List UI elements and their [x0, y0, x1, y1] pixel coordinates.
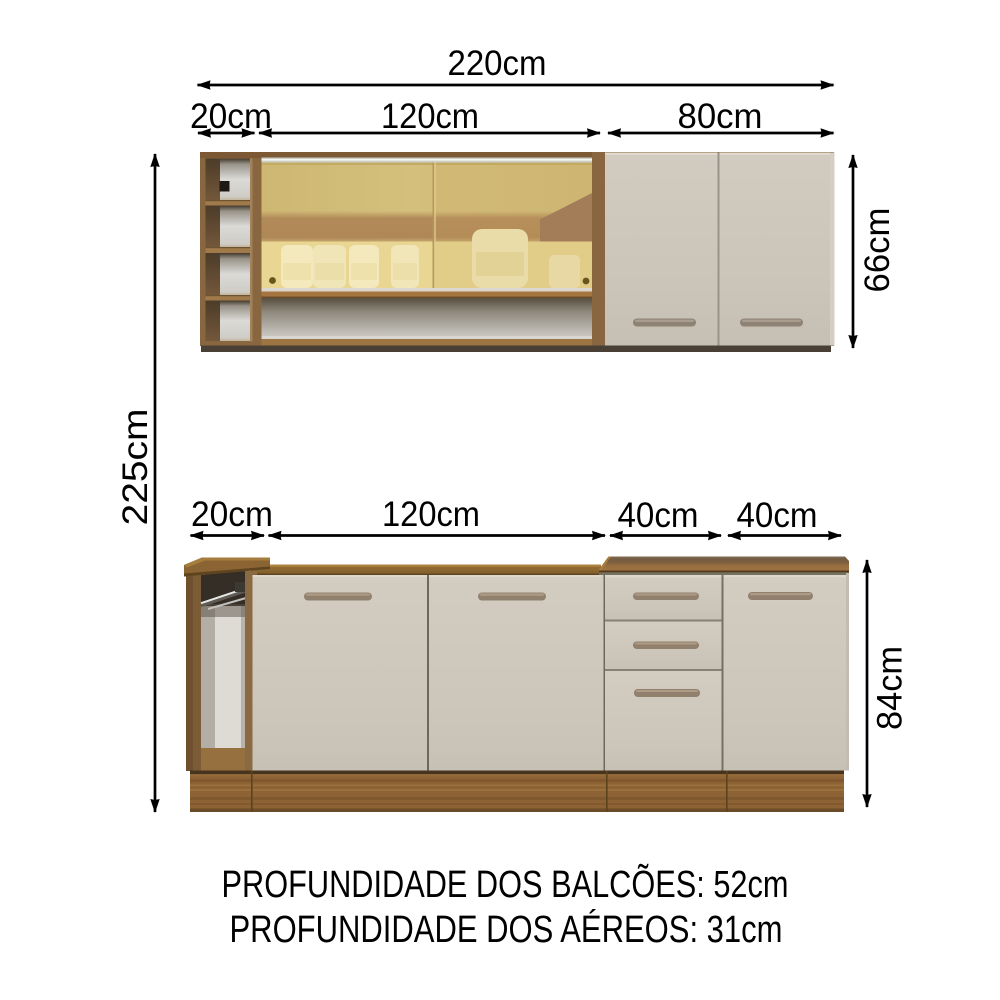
svg-text:80cm: 80cm: [678, 97, 763, 136]
svg-text:120cm: 120cm: [381, 97, 479, 136]
svg-text:220cm: 220cm: [448, 44, 547, 83]
svg-text:PROFUNDIDADE DOS AÉREOS: 31cm: PROFUNDIDADE DOS AÉREOS: 31cm: [230, 908, 783, 951]
svg-text:66cm: 66cm: [858, 208, 897, 293]
svg-text:40cm: 40cm: [737, 496, 818, 535]
svg-text:120cm: 120cm: [382, 495, 480, 534]
svg-text:PROFUNDIDADE DOS BALCÕES: 52cm: PROFUNDIDADE DOS BALCÕES: 52cm: [222, 862, 789, 906]
svg-text:20cm: 20cm: [191, 495, 273, 534]
svg-text:40cm: 40cm: [618, 496, 699, 535]
svg-text:20cm: 20cm: [190, 97, 272, 136]
svg-text:225cm: 225cm: [116, 409, 155, 526]
svg-text:84cm: 84cm: [871, 646, 910, 730]
